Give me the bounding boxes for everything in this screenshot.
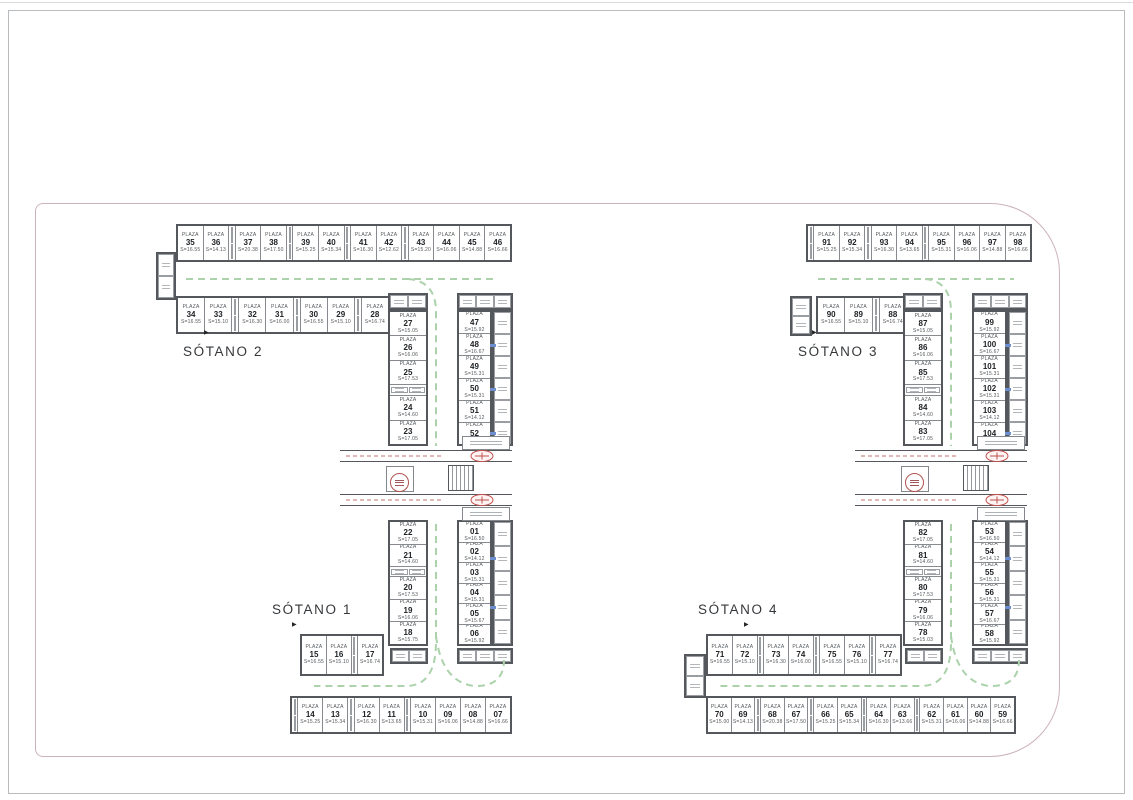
storage-box	[810, 244, 812, 260]
parking-stall-50: PLAZA50S=15.31	[459, 379, 490, 401]
illegible-text-line	[498, 346, 507, 347]
door-mark	[490, 344, 496, 347]
parking-stall-71: PLAZA71S=16.55	[708, 636, 733, 674]
parking-stall-60: PLAZA60S=14.88	[968, 698, 992, 732]
stall-area: S=15.10	[848, 320, 868, 325]
parking-stall-01: PLAZA01S=16.50	[459, 522, 490, 543]
stairwell-hatch	[448, 465, 474, 491]
stall-area: S=16.50	[464, 537, 484, 542]
illegible-text-line	[995, 657, 1005, 658]
stall-area: S=15.31	[922, 720, 942, 725]
storage-box	[875, 299, 877, 315]
illegible-text-line	[1013, 343, 1022, 344]
illegible-text-line	[1013, 581, 1022, 582]
illegible-text-line	[910, 570, 919, 571]
parking-stall-23: PLAZA23S=17.05	[390, 421, 426, 444]
storage-box	[408, 295, 426, 308]
storage-box	[815, 637, 817, 655]
parking-stall-29: PLAZA29S=15.10	[328, 298, 355, 332]
stall-area: S=14.88	[982, 248, 1002, 253]
stall-area: S=17.50	[263, 248, 283, 253]
stall-area: S=12.62	[379, 248, 399, 253]
storage-box	[391, 387, 408, 393]
storage-box	[494, 522, 511, 546]
stall-area: S=16.74	[878, 660, 898, 665]
storage-strip	[492, 520, 513, 646]
stall-area: S=16.06	[436, 248, 456, 253]
illegible-text-line	[394, 300, 404, 301]
illegible-text-line	[498, 605, 507, 606]
stall-area: S=16.30	[869, 720, 889, 725]
parking-stall-30: PLAZA30S=16.55	[301, 298, 328, 332]
core-corridor-bottom	[340, 494, 512, 506]
storage-cell	[873, 298, 880, 332]
ramp-circle-symbol	[905, 473, 924, 492]
plaza-word: PLAZA	[915, 545, 932, 550]
parking-stall-22: PLAZA22S=17.05	[390, 522, 426, 545]
storage-box	[875, 316, 877, 332]
parking-stall-02: PLAZA02S=14.12	[459, 543, 490, 564]
stall-area: S=15.25	[296, 248, 316, 253]
stall-area: S=14.88	[463, 720, 483, 725]
plaza-word: PLAZA	[915, 314, 932, 319]
parking-stall-05: PLAZA05S=15.67	[459, 604, 490, 625]
stall-area: S=16.55	[821, 320, 841, 325]
stall-area: S=15.31	[464, 372, 484, 377]
stall-area: S=20.38	[762, 720, 782, 725]
illegible-text-line	[1013, 560, 1022, 561]
stall-area: S=16.30	[353, 248, 373, 253]
stall-area: S=15.31	[979, 372, 999, 377]
storage-box	[810, 699, 812, 715]
storage-box	[406, 699, 408, 715]
parking-stall-61: PLAZA61S=16.06	[944, 698, 968, 732]
parking-stall-86: PLAZA86S=16.06	[905, 336, 941, 360]
storage-box	[686, 656, 704, 676]
storage-strip	[1007, 310, 1028, 446]
stall-area: S=16.55	[304, 660, 324, 665]
illegible-text-line	[1013, 368, 1022, 369]
parking-stall-59: PLAZA59S=16.66	[991, 698, 1014, 732]
parking-stall-04: PLAZA04S=15.31	[459, 584, 490, 605]
illegible-text-line	[413, 657, 422, 658]
stall-area: S=17.05	[398, 437, 418, 442]
storage-box	[871, 656, 873, 674]
illegible-text-line	[927, 570, 936, 571]
illegible-text-line	[927, 391, 936, 392]
parking-stall-36: PLAZA36S=14.13	[204, 226, 230, 260]
parking-stall-98: PLAZA98S=16.66	[1006, 226, 1030, 260]
parking-stall-101: PLAZA101S=15.31	[974, 356, 1005, 378]
parking-stall-08: PLAZA08S=14.88	[461, 698, 486, 732]
storage-box	[924, 569, 941, 575]
parking-stall-80: PLAZA80S=17.53	[905, 577, 941, 600]
stall-number: 05	[470, 610, 479, 618]
parking-stall-70: PLAZA70S=15.00	[708, 698, 732, 732]
storage-box	[924, 387, 941, 393]
storage-cell	[905, 567, 941, 577]
storage-box	[923, 295, 941, 308]
stall-number: 48	[470, 341, 479, 349]
stall-area: S=16.30	[874, 248, 894, 253]
stall-area: S=15.31	[979, 578, 999, 583]
illegible-text-line	[928, 654, 937, 655]
illegible-text-line	[498, 608, 507, 609]
parking-stall-38: PLAZA38S=17.50	[261, 226, 287, 260]
illegible-text-line	[498, 532, 507, 533]
storage-box	[757, 716, 759, 732]
stall-area: S=17.53	[398, 593, 418, 598]
storage-box	[810, 716, 812, 732]
illegible-text-line	[978, 300, 988, 301]
storage-box	[231, 227, 233, 243]
illegible-text-line	[412, 391, 421, 392]
parking-stall-68: PLAZA68S=20.38	[761, 698, 785, 732]
plaza-word: PLAZA	[466, 423, 483, 428]
parking-stall-55: PLAZA55S=15.31	[974, 563, 1005, 584]
parking-stall-18: PLAZA18S=15.75	[390, 622, 426, 644]
storage-box	[391, 569, 408, 575]
storage-box	[974, 295, 991, 308]
storage-box	[296, 316, 298, 332]
stall-area: S=15.92	[464, 639, 484, 644]
door-mark	[490, 606, 496, 609]
parking-stall-45: PLAZA45S=14.88	[460, 226, 486, 260]
stall-row-right-s3_outer: PLAZA99S=15.92PLAZA100S=16.67PLAZA101S=1…	[972, 310, 1007, 446]
plaza-word: PLAZA	[466, 312, 483, 317]
illegible-text-line	[498, 390, 507, 391]
storage-box	[459, 295, 476, 308]
storage-box	[1009, 400, 1026, 422]
plaza-word: PLAZA	[400, 362, 417, 367]
parking-stall-99: PLAZA99S=15.92	[974, 312, 1005, 334]
illegible-text-line	[463, 654, 473, 655]
storage-box	[346, 227, 348, 243]
direction-arrow: ▶	[744, 622, 749, 628]
illegible-text-line	[396, 657, 405, 658]
illegible-text-line	[463, 300, 473, 301]
illegible-text-line	[395, 573, 404, 574]
storage-box	[974, 650, 991, 662]
stall-row-right-s3_inner: PLAZA87S=15.05PLAZA86S=16.06PLAZA85S=17.…	[903, 310, 943, 446]
storage-box	[810, 227, 812, 243]
parking-stall-92: PLAZA92S=15.34	[840, 226, 865, 260]
parking-stall-63: PLAZA63S=13.66	[891, 698, 915, 732]
storage-box	[353, 656, 355, 674]
illegible-text-line	[480, 654, 490, 655]
illegible-text-line	[927, 573, 936, 574]
parking-stall-32: PLAZA32S=16.30	[239, 298, 266, 332]
door-mark	[1005, 606, 1011, 609]
parking-stall-15: PLAZA15S=16.55	[302, 636, 327, 674]
stall-area: S=15.10	[847, 660, 867, 665]
utility-room	[977, 507, 1025, 521]
stall-area: S=16.00	[269, 320, 289, 325]
illegible-text-line	[498, 368, 507, 369]
illegible-text-line	[690, 664, 700, 665]
illegible-text-line	[498, 434, 507, 435]
core-corridor-top	[340, 450, 512, 462]
storage-box	[494, 295, 511, 308]
stall-area: S=13.66	[892, 720, 912, 725]
storage-box	[924, 244, 926, 260]
plaza-word: PLAZA	[400, 545, 417, 550]
plaza-word: PLAZA	[981, 423, 998, 428]
stall-area: S=20.38	[238, 248, 258, 253]
storage-box	[1009, 356, 1026, 378]
illegible-text-line	[480, 300, 490, 301]
parking-stall-34: PLAZA34S=16.55	[178, 298, 205, 332]
stall-area: S=15.34	[839, 720, 859, 725]
illegible-text-line	[1013, 412, 1022, 413]
illegible-text-line	[412, 388, 421, 389]
illegible-text-line	[498, 657, 508, 658]
illegible-text-line	[1013, 409, 1022, 410]
parking-stall-90: PLAZA90S=16.55	[818, 298, 845, 332]
parking-stall-41: PLAZA41S=16.30	[351, 226, 377, 260]
storage-strip	[684, 654, 706, 698]
stall-area: S=15.10	[331, 320, 351, 325]
parking-stall-48: PLAZA48S=16.67	[459, 334, 490, 356]
stall-area: S=16.30	[766, 660, 786, 665]
storage-box	[296, 299, 298, 315]
plaza-word: PLAZA	[400, 600, 417, 605]
parking-stall-33: PLAZA33S=15.10	[205, 298, 232, 332]
parking-stall-42: PLAZA42S=12.62	[377, 226, 403, 260]
stall-area: S=15.34	[842, 248, 862, 253]
storage-box	[476, 295, 493, 308]
stall-number: 57	[985, 610, 994, 618]
parking-stall-10: PLAZA10S=15.31	[411, 698, 436, 732]
stall-area: S=17.53	[913, 593, 933, 598]
stall-area: S=15.10	[208, 320, 228, 325]
illegible-text-line	[911, 654, 920, 655]
storage-box	[494, 312, 511, 334]
illegible-text-line	[910, 388, 919, 389]
storage-box	[494, 546, 511, 570]
storage-box	[231, 244, 233, 260]
stall-area: S=17.05	[913, 437, 933, 442]
stall-number: 01	[470, 528, 479, 536]
parking-stall-82: PLAZA82S=17.05	[905, 522, 941, 545]
stall-number: 82	[919, 529, 928, 537]
illegible-text-line	[909, 303, 919, 304]
storage-box	[815, 656, 817, 674]
illegible-text-line	[498, 633, 507, 634]
label-sotano-4: SÓTANO 4	[698, 602, 778, 617]
parking-stall-16: PLAZA16S=15.10	[327, 636, 352, 674]
parking-stall-85: PLAZA85S=17.53	[905, 361, 941, 385]
storage-strip	[388, 293, 428, 310]
storage-box	[494, 650, 511, 662]
utility-room	[462, 507, 510, 521]
illegible-text-line	[395, 391, 404, 392]
storage-box	[905, 295, 923, 308]
illegible-text-line	[498, 630, 507, 631]
stall-area: S=15.31	[931, 248, 951, 253]
parking-stall-75: PLAZA75S=16.55	[820, 636, 845, 674]
parking-stall-14: PLAZA14S=15.25	[298, 698, 323, 732]
illegible-text-line	[1013, 365, 1022, 366]
parking-stall-74: PLAZA74S=16.00	[789, 636, 814, 674]
stall-area: S=17.53	[913, 377, 933, 382]
parking-stall-73: PLAZA73S=16.30	[764, 636, 789, 674]
stall-area: S=14.60	[913, 413, 933, 418]
illegible-text-line	[480, 657, 490, 658]
stall-area: S=16.67	[979, 350, 999, 355]
storage-box	[757, 699, 759, 715]
stall-area: S=16.66	[993, 720, 1013, 725]
illegible-text-line	[162, 266, 171, 267]
direction-arrow: ▶	[204, 330, 209, 336]
storage-cell	[355, 298, 362, 332]
parking-stall-20: PLAZA20S=17.53	[390, 577, 426, 600]
core-corridor-top	[855, 450, 1027, 462]
stall-area: S=16.30	[242, 320, 262, 325]
utility-room	[977, 436, 1025, 450]
storage-box	[158, 276, 174, 298]
stall-row-left-top_inner: PLAZA34S=16.55PLAZA33S=15.10PLAZA32S=16.…	[176, 296, 390, 334]
parking-stall-25: PLAZA25S=17.53	[390, 361, 426, 385]
storage-strip	[457, 648, 513, 664]
stall-area: S=17.50	[786, 720, 806, 725]
illegible-text-line	[162, 285, 171, 286]
stall-row-right-bot_inner: PLAZA71S=16.55PLAZA72S=15.10PLAZA73S=16.…	[706, 634, 902, 676]
illegible-text-line	[412, 573, 421, 574]
illegible-text-line	[498, 654, 508, 655]
storage-box	[406, 716, 408, 732]
storage-box	[1009, 378, 1026, 400]
storage-box	[863, 716, 865, 732]
parking-stall-65: PLAZA65S=15.34	[838, 698, 862, 732]
storage-box	[1009, 620, 1026, 644]
parking-stall-57: PLAZA57S=16.67	[974, 604, 1005, 625]
door-mark	[490, 557, 496, 560]
storage-strip	[790, 296, 812, 336]
parking-stall-21: PLAZA21S=14.60	[390, 545, 426, 568]
illegible-text-line	[1013, 324, 1022, 325]
storage-box	[404, 244, 406, 260]
stall-area: S=16.67	[979, 619, 999, 624]
stall-area: S=16.74	[883, 320, 903, 325]
storage-box	[1009, 595, 1026, 619]
illegible-text-line	[1013, 303, 1023, 304]
door-mark	[1005, 432, 1011, 435]
label-sotano-2: SÓTANO 2	[183, 344, 263, 359]
door-mark	[490, 388, 496, 391]
stall-area: S=16.50	[979, 537, 999, 542]
storage-box	[924, 227, 926, 243]
storage-box	[1009, 312, 1026, 334]
parking-stall-11: PLAZA11S=13.65	[380, 698, 405, 732]
parking-stall-51: PLAZA51S=14.12	[459, 401, 490, 423]
illegible-text-line	[1013, 633, 1022, 634]
parking-stall-53: PLAZA53S=16.50	[974, 522, 1005, 543]
storage-box	[404, 227, 406, 243]
storage-strip	[972, 648, 1028, 664]
illegible-text-line	[498, 365, 507, 366]
door-mark	[1005, 557, 1011, 560]
storage-box	[991, 295, 1008, 308]
stall-area: S=14.12	[979, 416, 999, 421]
storage-cell	[390, 567, 426, 577]
illegible-text-line	[1013, 657, 1023, 658]
illegible-text-line	[1013, 532, 1022, 533]
parking-stall-58: PLAZA58S=15.92	[974, 625, 1005, 645]
stall-area: S=15.00	[709, 720, 729, 725]
stall-area: S=15.31	[979, 394, 999, 399]
stall-area: S=15.31	[979, 598, 999, 603]
illegible-text-line	[796, 305, 806, 306]
stall-row-left-s1_outer: PLAZA01S=16.50PLAZA02S=14.12PLAZA03S=15.…	[457, 520, 492, 646]
illegible-text-line	[1013, 535, 1022, 536]
stall-area: S=16.06	[957, 248, 977, 253]
illegible-text-line	[412, 300, 422, 301]
parking-stall-39: PLAZA39S=15.25	[293, 226, 319, 260]
parking-stall-78: PLAZA78S=15.03	[905, 622, 941, 644]
storage-box	[916, 699, 918, 715]
parking-stall-56: PLAZA56S=15.31	[974, 584, 1005, 605]
storage-strip	[390, 648, 428, 664]
parking-stall-62: PLAZA62S=15.31	[920, 698, 944, 732]
parking-stall-26: PLAZA26S=16.06	[390, 336, 426, 360]
stall-number: 53	[985, 528, 994, 536]
storage-box	[924, 650, 941, 662]
stall-number: 99	[985, 319, 994, 327]
storage-box	[353, 637, 355, 655]
stall-row-right-s4_inner: PLAZA82S=17.05PLAZA81S=14.60PLAZA80S=17.…	[903, 520, 943, 646]
illegible-text-line	[498, 535, 507, 536]
illegible-text-line	[995, 654, 1005, 655]
stall-area: S=14.13	[733, 720, 753, 725]
illegible-text-line	[928, 657, 937, 658]
stall-area: S=16.06	[913, 353, 933, 358]
stall-area: S=16.06	[913, 616, 933, 621]
parking-stall-76: PLAZA76S=15.10	[845, 636, 870, 674]
parking-stall-40: PLAZA40S=15.34	[319, 226, 345, 260]
stall-area: S=15.20	[411, 248, 431, 253]
storage-box	[871, 637, 873, 655]
storage-box	[916, 716, 918, 732]
illegible-text-line	[498, 412, 507, 413]
parking-stall-35: PLAZA35S=16.55	[178, 226, 204, 260]
illegible-text-line	[1013, 390, 1022, 391]
illegible-text-line	[498, 409, 507, 410]
stall-area: S=14.60	[913, 560, 933, 565]
illegible-text-line	[1013, 346, 1022, 347]
illegible-text-line	[498, 557, 507, 558]
stall-area: S=17.53	[398, 377, 418, 382]
utility-room	[462, 436, 510, 450]
parking-stall-13: PLAZA13S=15.34	[323, 698, 348, 732]
storage-strip	[492, 310, 513, 446]
illegible-text-line	[498, 321, 507, 322]
illegible-text-line	[1013, 605, 1022, 606]
illegible-text-line	[927, 388, 936, 389]
parking-stall-83: PLAZA83S=17.05	[905, 421, 941, 444]
parking-stall-54: PLAZA54S=14.12	[974, 543, 1005, 564]
parking-stall-07: PLAZA07S=16.66	[486, 698, 510, 732]
stall-area: S=16.67	[464, 350, 484, 355]
floor-plan-sheet: PLAZA35S=16.55PLAZA36S=14.13PLAZA37S=20.…	[0, 0, 1133, 800]
stall-area: S=17.05	[913, 538, 933, 543]
stall-area: S=14.60	[398, 560, 418, 565]
stall-area: S=15.92	[464, 328, 484, 333]
illegible-text-line	[796, 323, 806, 324]
stall-row-left-top_outer: PLAZA35S=16.55PLAZA36S=14.13PLAZA37S=20.…	[176, 224, 512, 262]
parking-stall-37: PLAZA37S=20.38	[236, 226, 262, 260]
storage-cell	[390, 385, 426, 396]
